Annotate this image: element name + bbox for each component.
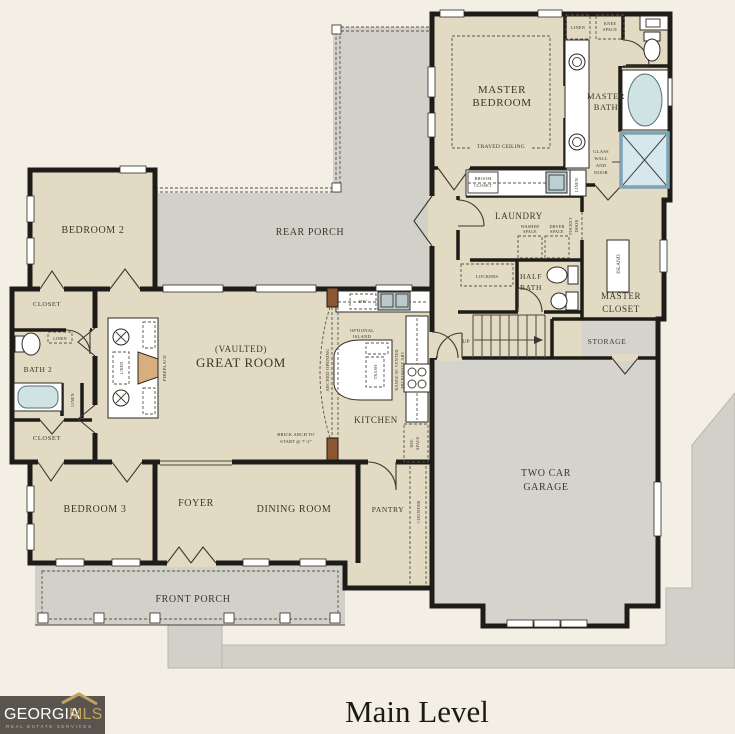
- washer-label2: SPACE: [523, 229, 537, 234]
- garage-label2: GARAGE: [523, 482, 568, 493]
- toilet-icon: [547, 267, 567, 283]
- porch-column: [150, 613, 160, 623]
- logo-brand-mls: MLS: [69, 706, 103, 723]
- glass-wall-label2: WALL: [594, 156, 608, 161]
- toilet-tank: [568, 266, 578, 284]
- brick-arch-label: BRICK ARCH TO: [277, 432, 315, 437]
- brick-arch-label2: START @ 7'-2": [280, 439, 312, 444]
- pocket-door-label: POCKET: [568, 217, 573, 235]
- trash-label: TRASH: [373, 365, 378, 380]
- dryer-label2: SPACE: [550, 229, 564, 234]
- porch-column: [38, 613, 48, 623]
- arched-opening-label: ARCHED OPENING: [325, 348, 330, 391]
- bedroom2-label: BEDROOM 2: [62, 225, 125, 236]
- porch-post: [332, 25, 341, 34]
- counter-label: COUNTER: [416, 500, 421, 524]
- logo-tagline: REAL ESTATE SERVICES: [6, 724, 93, 729]
- range-label2: MICROWAVE ABV: [400, 351, 405, 389]
- sink-icon: [569, 134, 585, 150]
- bathtub-icon: [18, 386, 58, 408]
- bedroom3-label: BEDROOM 3: [64, 504, 127, 515]
- great-room-label: (VAULTED): [215, 344, 267, 354]
- master-bath-label: MASTER: [587, 91, 625, 101]
- porch-post: [332, 183, 341, 192]
- linen-label: LINEN: [571, 25, 586, 30]
- closet-label: CLOSET: [33, 301, 61, 308]
- master-bedroom-label2: BEDROOM: [472, 97, 531, 109]
- foyer-label: FOYER: [178, 498, 214, 509]
- arch-post: [327, 288, 338, 307]
- half-bath-label2: BATH: [520, 283, 542, 292]
- georgia-mls-logo: GEORGIA MLS REAL ESTATE SERVICES: [0, 694, 105, 734]
- closet-island-label: ISLAND: [617, 254, 622, 274]
- dishwasher-label: DW: [359, 299, 368, 304]
- broom-closet-label2: CLOSET: [474, 183, 492, 188]
- knee-space-label: KNEE: [604, 21, 617, 26]
- kitchen-label: KITCHEN: [354, 415, 398, 425]
- sink-icon: [569, 54, 585, 70]
- trayed-ceiling-label: TRAYED CEILING: [477, 144, 525, 150]
- bath2-label: BATH 2: [24, 365, 53, 374]
- master-bedroom-label: MASTER: [478, 84, 526, 96]
- floor-plan-drawing: MASTER BEDROOM TRAYED CEILING MASTER BAT…: [0, 0, 735, 734]
- storage-label: STORAGE: [588, 337, 627, 346]
- half-bath-label: HALF: [520, 272, 542, 281]
- wc-vanity: [640, 16, 668, 30]
- porch-column: [280, 613, 290, 623]
- bathtub-icon: [628, 74, 662, 126]
- ref-space-label2: SPACE: [415, 436, 420, 450]
- porch-column: [224, 613, 234, 623]
- dining-room-label: DINING ROOM: [257, 504, 332, 515]
- pocket-door-label2: DOOR: [574, 220, 579, 233]
- glass-wall-label4: DOOR: [594, 170, 609, 175]
- pantry-label: PANTRY: [372, 505, 405, 514]
- fireplace-label: FIREPLACE: [162, 355, 167, 381]
- knee-space-label2: SPACE: [603, 27, 617, 32]
- floor-plan-page: MASTER BEDROOM TRAYED CEILING MASTER BAT…: [0, 0, 735, 734]
- rear-porch-label: REAR PORCH: [276, 227, 345, 238]
- porch-column: [94, 613, 104, 623]
- kitchen-island: [334, 340, 392, 400]
- toilet-icon: [22, 333, 40, 355]
- stairs-up-label: UP: [462, 339, 469, 345]
- master-bath-label2: BATH: [594, 102, 619, 112]
- lockers-label: LOCKERS: [476, 274, 499, 279]
- toilet-icon: [644, 39, 660, 61]
- optional-island-label2: ISLAND: [353, 334, 372, 339]
- range-label: RANGE W/ VENTED: [394, 349, 399, 390]
- garage-label: TWO CAR: [521, 468, 571, 479]
- master-closet-label2: CLOSET: [602, 304, 640, 314]
- laundry-label: LAUNDRY: [495, 211, 543, 221]
- glass-wall-label: GLASS: [593, 149, 609, 154]
- linen-label: LINEN: [70, 393, 75, 407]
- glass-wall-label3: AND: [596, 163, 607, 168]
- optional-island-label: OPTIONAL: [350, 328, 375, 333]
- linen-label: LINEN: [574, 177, 579, 192]
- front-porch-label: FRONT PORCH: [155, 594, 230, 605]
- great-room-label2: GREAT ROOM: [196, 355, 286, 370]
- front-walkway: [168, 625, 222, 668]
- fireplace-unit: [108, 318, 158, 418]
- master-closet-label: MASTER: [601, 291, 641, 301]
- broom-closet-label: BROOM: [474, 176, 491, 181]
- plan-title: Main Level: [345, 694, 489, 729]
- range-icon: [404, 364, 430, 392]
- ref-space-label: REF.: [409, 438, 414, 447]
- sink-base: [566, 292, 578, 310]
- porch-column: [330, 613, 340, 623]
- arch-post: [327, 438, 338, 460]
- linen-label: LINEN: [53, 336, 67, 341]
- closet-label: CLOSET: [33, 435, 61, 442]
- pedestal-sink-icon: [551, 293, 567, 309]
- linen-label: LINEN: [120, 362, 124, 374]
